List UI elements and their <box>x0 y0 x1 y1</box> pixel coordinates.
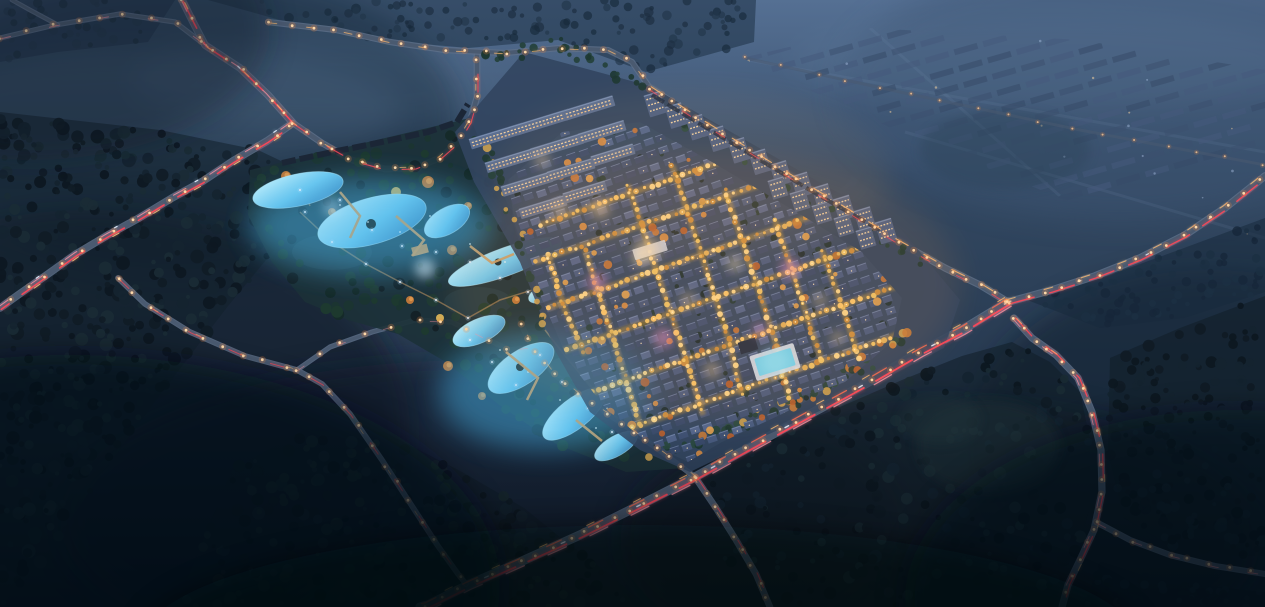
aerial-render-scene <box>0 0 1265 607</box>
masterplan-night-render <box>0 0 1265 607</box>
